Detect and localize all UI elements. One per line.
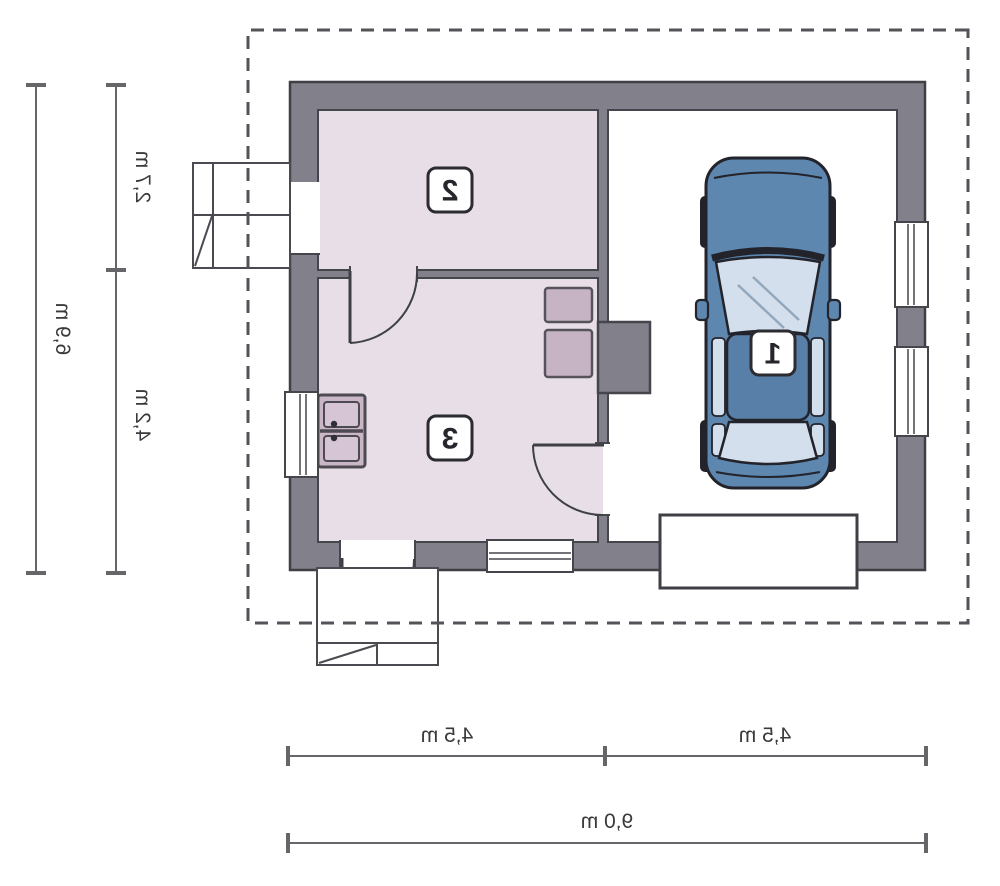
car-windshield: [716, 257, 820, 334]
cabinet-large: [545, 330, 592, 377]
dim-label-total-width: 9,0 m: [581, 810, 634, 833]
dimension-lines-side: [26, 85, 126, 573]
room-number-1: 1: [765, 338, 782, 371]
dimension-lines-bottom: [288, 746, 926, 853]
cabinet-small: [545, 288, 592, 322]
garage-window-1: [895, 222, 928, 307]
steps-side-entrance: [193, 163, 290, 268]
plan-mirror-group: 1 2 3 6,9 m 2,7 m 4,2 m 4,5 m 4,5 m 9: [26, 30, 968, 853]
car-mirror-right: [696, 300, 708, 320]
floor-plan-svg: 1 2 3 6,9 m 2,7 m 4,2 m 4,5 m 4,5 m 9: [0, 0, 1000, 886]
room3-side-window: [285, 392, 318, 477]
car: [696, 158, 840, 488]
dim-label-segment-45a: 4,5 m: [421, 724, 474, 747]
room-number-3: 3: [442, 423, 459, 456]
steps-bottom-entrance: [317, 568, 438, 665]
garage-window-2: [895, 347, 928, 436]
room-label-1: 1: [751, 331, 795, 375]
chimney: [598, 322, 650, 393]
room-number-2: 2: [442, 175, 459, 208]
dim-label-total-height: 6,9 m: [51, 303, 74, 356]
floor-plan-page: 1 2 3 6,9 m 2,7 m 4,2 m 4,5 m 4,5 m 9: [0, 0, 1000, 886]
room-label-2: 2: [428, 168, 472, 212]
sink: [318, 395, 365, 467]
room-label-3: 3: [428, 416, 472, 460]
room3-bottom-window: [487, 540, 573, 572]
dim-label-segment-27: 2,7 m: [131, 151, 154, 204]
car-mirror-left: [828, 300, 840, 320]
dim-label-segment-45b: 4,5 m: [739, 724, 792, 747]
dim-label-segment-42: 4,2 m: [131, 389, 154, 442]
car-rear-window: [719, 422, 817, 464]
garage-door: [660, 515, 857, 588]
